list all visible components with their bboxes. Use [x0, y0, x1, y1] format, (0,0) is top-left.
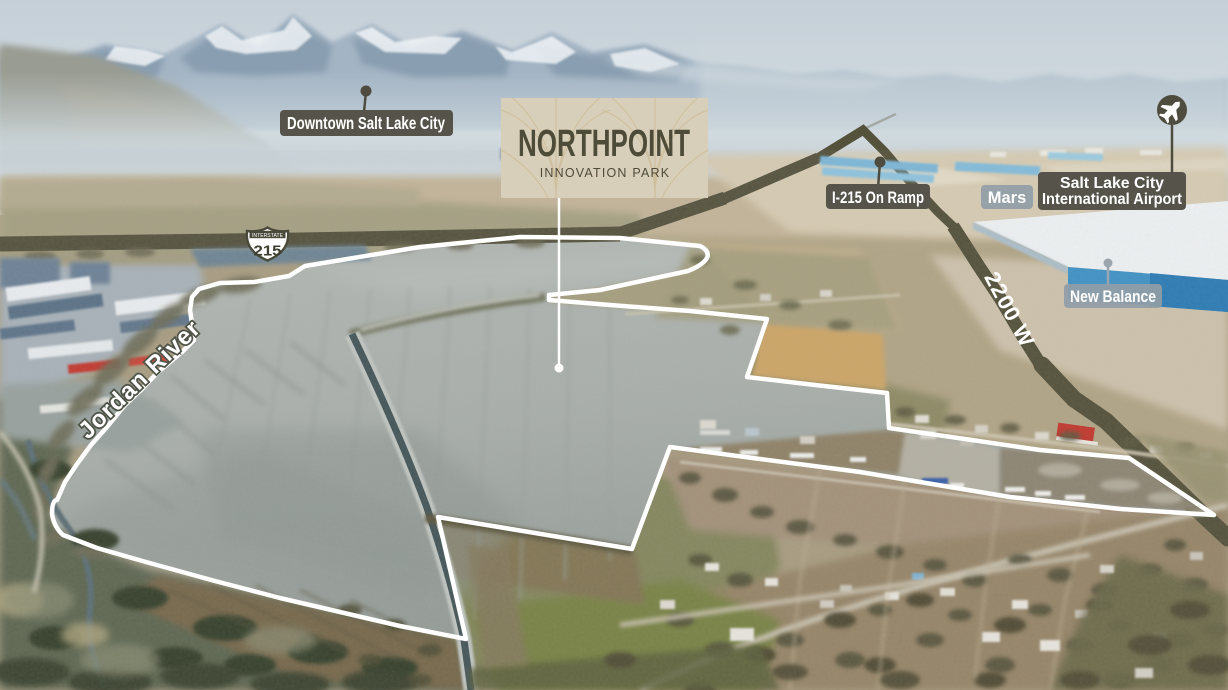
svg-text:Salt Lake City: Salt Lake City [1060, 175, 1164, 192]
svg-text:I-215 On Ramp: I-215 On Ramp [832, 189, 924, 207]
svg-text:New Balance: New Balance [1070, 288, 1156, 306]
svg-text:INNOVATION PARK: INNOVATION PARK [540, 166, 671, 180]
svg-text:Downtown Salt Lake City: Downtown Salt Lake City [287, 113, 445, 133]
svg-text:NORTHPOINT: NORTHPOINT [518, 123, 690, 165]
svg-text:Mars: Mars [988, 189, 1027, 207]
svg-text:INTERSTATE: INTERSTATE [252, 233, 284, 239]
svg-text:International Airport: International Airport [1042, 191, 1182, 208]
svg-text:215: 215 [254, 243, 282, 260]
